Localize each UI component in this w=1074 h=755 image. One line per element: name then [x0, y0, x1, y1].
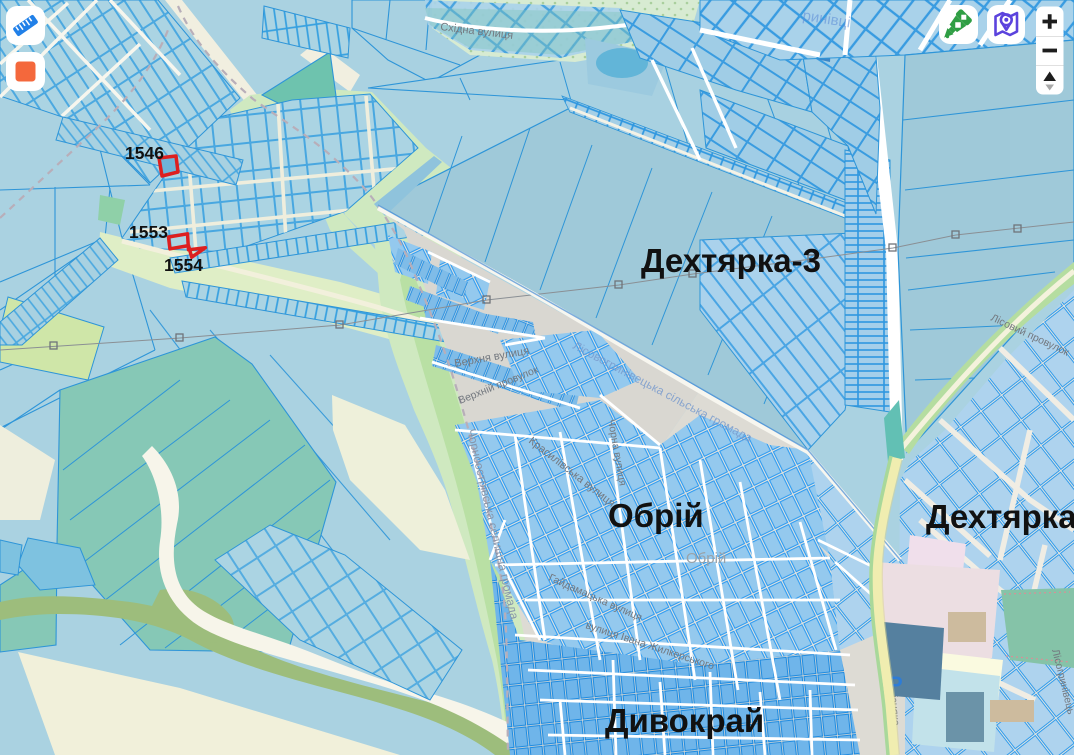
svg-text:Дехтярка-3: Дехтярка-3	[641, 242, 821, 279]
svg-text:1546: 1546	[125, 143, 164, 163]
svg-text:Дивокрай: Дивокрай	[605, 702, 764, 739]
svg-text:Обрій: Обрій	[608, 497, 704, 534]
svg-text:Обрій: Обрій	[686, 550, 726, 567]
svg-text:Дехтярка: Дехтярка	[926, 498, 1074, 535]
svg-text:1553: 1553	[129, 222, 168, 242]
svg-text:1554: 1554	[164, 255, 203, 275]
